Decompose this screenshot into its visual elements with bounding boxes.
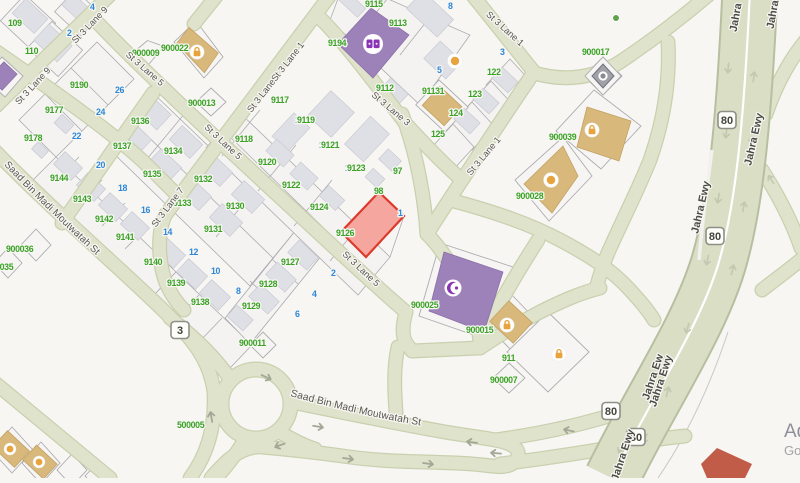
svg-text:80: 80 — [709, 231, 721, 243]
svg-text:9122: 9122 — [282, 180, 301, 190]
svg-text:9142: 9142 — [95, 214, 114, 224]
svg-text:900015: 900015 — [466, 325, 494, 335]
svg-text:14: 14 — [163, 227, 173, 237]
svg-text:900011: 900011 — [239, 338, 266, 348]
svg-text:9144: 9144 — [50, 173, 69, 183]
svg-text:6: 6 — [295, 309, 300, 319]
svg-text:9137: 9137 — [113, 141, 132, 151]
svg-text:9119: 9119 — [297, 115, 315, 125]
svg-text:122: 122 — [487, 67, 501, 77]
svg-text:4: 4 — [90, 2, 95, 12]
svg-text:9131: 9131 — [204, 224, 223, 234]
svg-text:900035: 900035 — [0, 262, 14, 272]
svg-text:24: 24 — [96, 107, 106, 117]
svg-text:9136: 9136 — [131, 116, 150, 126]
svg-text:5: 5 — [437, 65, 442, 75]
svg-text:9134: 9134 — [164, 146, 183, 156]
svg-text:26: 26 — [115, 85, 125, 95]
svg-text:4: 4 — [312, 289, 317, 299]
svg-text:97: 97 — [393, 166, 403, 176]
svg-text:911: 911 — [502, 353, 516, 363]
svg-text:Go: Go — [784, 443, 800, 458]
svg-text:80: 80 — [721, 115, 733, 127]
svg-text:900007: 900007 — [490, 375, 518, 385]
svg-text:9121: 9121 — [321, 140, 340, 150]
svg-text:900036: 900036 — [6, 244, 34, 254]
svg-text:9132: 9132 — [194, 174, 213, 184]
svg-text:80: 80 — [605, 406, 617, 418]
svg-text:125: 125 — [431, 129, 445, 139]
svg-text:12: 12 — [189, 247, 199, 257]
svg-text:9117: 9117 — [271, 95, 289, 105]
svg-text:9141: 9141 — [116, 232, 135, 242]
svg-text:9120: 9120 — [258, 157, 277, 167]
svg-text:Ad: Ad — [784, 421, 800, 442]
svg-text:9177: 9177 — [45, 105, 64, 115]
svg-text:9113: 9113 — [389, 18, 407, 28]
svg-text:9135: 9135 — [143, 169, 162, 179]
svg-text:9139: 9139 — [167, 278, 186, 288]
svg-text:110: 110 — [25, 46, 39, 56]
svg-text:9115: 9115 — [365, 0, 383, 9]
svg-text:900017: 900017 — [582, 47, 610, 57]
svg-text:16: 16 — [141, 205, 151, 215]
svg-text:500005: 500005 — [177, 420, 205, 430]
svg-text:9190: 9190 — [70, 80, 89, 90]
svg-text:9124: 9124 — [310, 202, 329, 212]
svg-text:3: 3 — [500, 47, 505, 57]
svg-text:10: 10 — [211, 266, 221, 276]
svg-text:9130: 9130 — [226, 201, 245, 211]
svg-text:9138: 9138 — [191, 297, 210, 307]
svg-text:9128: 9128 — [259, 279, 278, 289]
svg-text:22: 22 — [72, 131, 82, 141]
svg-text:20: 20 — [96, 160, 106, 170]
svg-text:900022: 900022 — [161, 43, 189, 53]
svg-text:900039: 900039 — [549, 132, 577, 142]
svg-text:9127: 9127 — [281, 257, 300, 267]
svg-text:18: 18 — [118, 183, 128, 193]
svg-text:8: 8 — [236, 286, 241, 296]
svg-text:9140: 9140 — [144, 257, 163, 267]
svg-text:9178: 9178 — [24, 133, 43, 143]
svg-text:9118: 9118 — [235, 134, 253, 144]
svg-text:2: 2 — [331, 268, 336, 278]
svg-text:9126: 9126 — [336, 228, 355, 238]
svg-text:900025: 900025 — [411, 300, 439, 310]
svg-text:98: 98 — [374, 186, 384, 196]
svg-text:91131: 91131 — [422, 86, 445, 96]
svg-text:900028: 900028 — [516, 191, 544, 201]
svg-text:900013: 900013 — [188, 98, 216, 108]
svg-text:3: 3 — [177, 325, 183, 337]
svg-text:8: 8 — [448, 1, 453, 11]
svg-text:9194: 9194 — [328, 38, 347, 48]
svg-text:109: 109 — [8, 18, 22, 28]
svg-text:1: 1 — [398, 208, 403, 218]
svg-text:123: 123 — [468, 89, 482, 99]
svg-text:9143: 9143 — [73, 194, 92, 204]
svg-text:124: 124 — [449, 108, 463, 118]
svg-text:9129: 9129 — [242, 301, 261, 311]
svg-text:9123: 9123 — [347, 163, 366, 173]
